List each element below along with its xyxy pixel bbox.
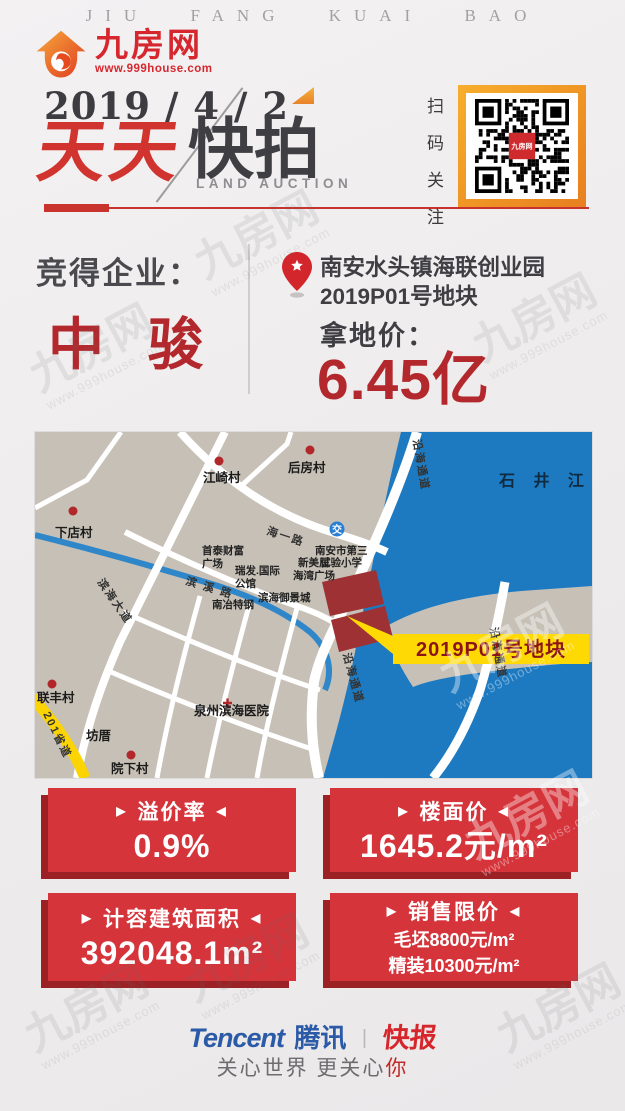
footer-slogan: 关心世界 更关心你 [0,1052,625,1082]
map-label: 石 井 江 [498,471,591,490]
location-pin-icon [282,250,312,305]
triangle-left-icon: ◀ [510,904,521,918]
floor-price-card: ▶ 楼面价 ◀ 1645.2元/m² [330,788,578,872]
map-label: 后房村 [288,460,326,475]
map-label: 试验小学 [320,556,362,569]
card-title: ▶ 溢价率 ◀ [116,796,227,826]
qr-code-inner: 九房网 [466,93,578,199]
qr-center-logo: 九房网 [510,141,532,150]
parcel-location-line1: 南安水头镇海联创业园 [320,250,545,282]
card-title: ▶ 销售限价 ◀ [387,896,521,926]
qr-caption-char: 扫 [427,92,444,117]
winner-label: 竞得企业： [36,248,201,293]
map-label: 公馆 [235,577,256,590]
map-label: 滨海御景城 [258,591,311,604]
logo-site-url: www.999house.com [95,63,213,75]
location-map: 石 井 江江崎村后房村下店村联丰村坊厝院下村泉州滨海医院南冶特钢滨海御景城首泰财… [35,432,592,778]
map-label: 瑞发.国际 [235,564,280,577]
tencent-logo-en: Tencent [188,1023,284,1053]
card-title-text: 溢价率 [138,796,207,826]
map-label: 院下村 [111,761,149,776]
winner-name: 中 骏 [48,300,218,381]
map-label: 广场 [202,557,223,570]
triangle-right-icon: ▶ [116,804,127,818]
premium-rate-card: ▶ 溢价率 ◀ 0.9% [48,788,296,872]
map-label: 江崎村 [203,470,241,485]
triangle-right-icon: ▶ [387,904,398,918]
floor-area-card: ▶ 计容建筑面积 ◀ 392048.1m² [48,893,296,981]
slogan-accent: 你 [385,1057,408,1080]
map-label: 南冶特钢 [212,598,254,611]
house-flame-logo-icon [34,28,88,87]
map-label: 交 [332,523,342,536]
subtitle-land-auction: LAND AUCTION [196,176,352,191]
masthead-tagline: JIU FANG KUAI BAO [0,6,625,26]
parcel-location-line2: 2019P01号地块 [320,279,478,311]
village-dot [69,507,78,516]
map-label: 坊厝 [86,728,111,743]
footer-separator: | [362,1027,367,1049]
map-label: 海湾广场 [293,569,335,582]
map-label: 泉州滨海医院 [193,703,270,718]
village-dot [306,446,315,455]
logo-site-name: 九房网 [95,28,213,63]
map-label: 2019P01号地块 [416,638,566,661]
qr-caption: 扫 码 关 注 [427,92,444,228]
poster: JIU FANG KUAI BAO 九房网 www.999house.com 2… [0,0,625,1111]
orange-corner-icon [292,87,314,104]
triangle-left-icon: ◀ [499,804,510,818]
map-label: 首泰财富 [202,544,244,557]
price-cap-rough: 毛坯8800元/m² [393,929,514,952]
triangle-right-icon: ▶ [82,911,93,925]
qr-code-pattern: 九房网 [475,99,569,193]
card-title-text: 计容建筑面积 [103,903,241,933]
map-label: 下店村 [55,525,93,540]
kuaibao-logo: 快报 [380,1016,438,1055]
site-logo: 九房网 www.999house.com [34,28,213,87]
qr-code: 九房网 [458,85,586,207]
triangle-left-icon: ◀ [251,911,262,925]
price-cap-card: ▶ 销售限价 ◀ 毛坯8800元/m² 精装10300元/m² [330,893,578,981]
land-price-value: 6.45亿 [317,334,490,416]
card-title-text: 楼面价 [420,796,489,826]
village-dot [215,457,224,466]
qr-caption-char: 关 [427,166,444,191]
price-cap-finished: 精装10300元/m² [388,955,519,978]
premium-rate-value: 0.9% [134,829,211,864]
footer-brand-row: Tencent 腾讯 | 快报 [0,1016,625,1055]
floor-area-value: 392048.1m² [81,936,264,971]
section-divider [248,244,250,394]
slogan-main: 关心世界 更关心 [217,1057,386,1080]
floor-price-value: 1645.2元/m² [360,829,548,864]
map-label: 联丰村 [37,690,75,705]
village-dot [48,680,57,689]
qr-caption-char: 注 [427,203,444,228]
title-kuaipai: 快拍 [188,116,320,182]
card-title-text: 销售限价 [408,896,500,926]
card-title: ▶ 计容建筑面积 ◀ [82,903,262,933]
map-label: 南安市第三 [315,544,368,557]
qr-caption-char: 码 [427,129,444,154]
tencent-logo-cn: 腾讯 [294,1023,346,1053]
village-dot [127,751,136,760]
card-title: ▶ 楼面价 ◀ [398,796,509,826]
title-tiantian: 天天 [33,118,187,186]
triangle-left-icon: ◀ [217,804,228,818]
header-rule [44,207,589,209]
triangle-right-icon: ▶ [398,804,409,818]
